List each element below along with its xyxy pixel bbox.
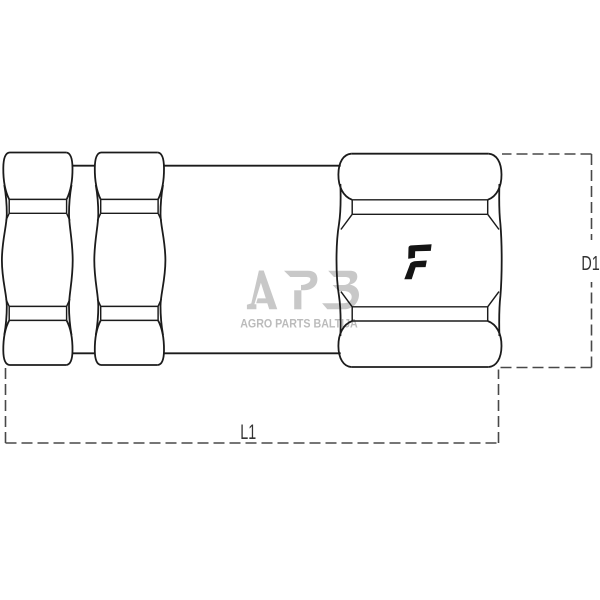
svg-text:L1: L1	[240, 420, 256, 443]
svg-text:D1: D1	[581, 252, 599, 275]
